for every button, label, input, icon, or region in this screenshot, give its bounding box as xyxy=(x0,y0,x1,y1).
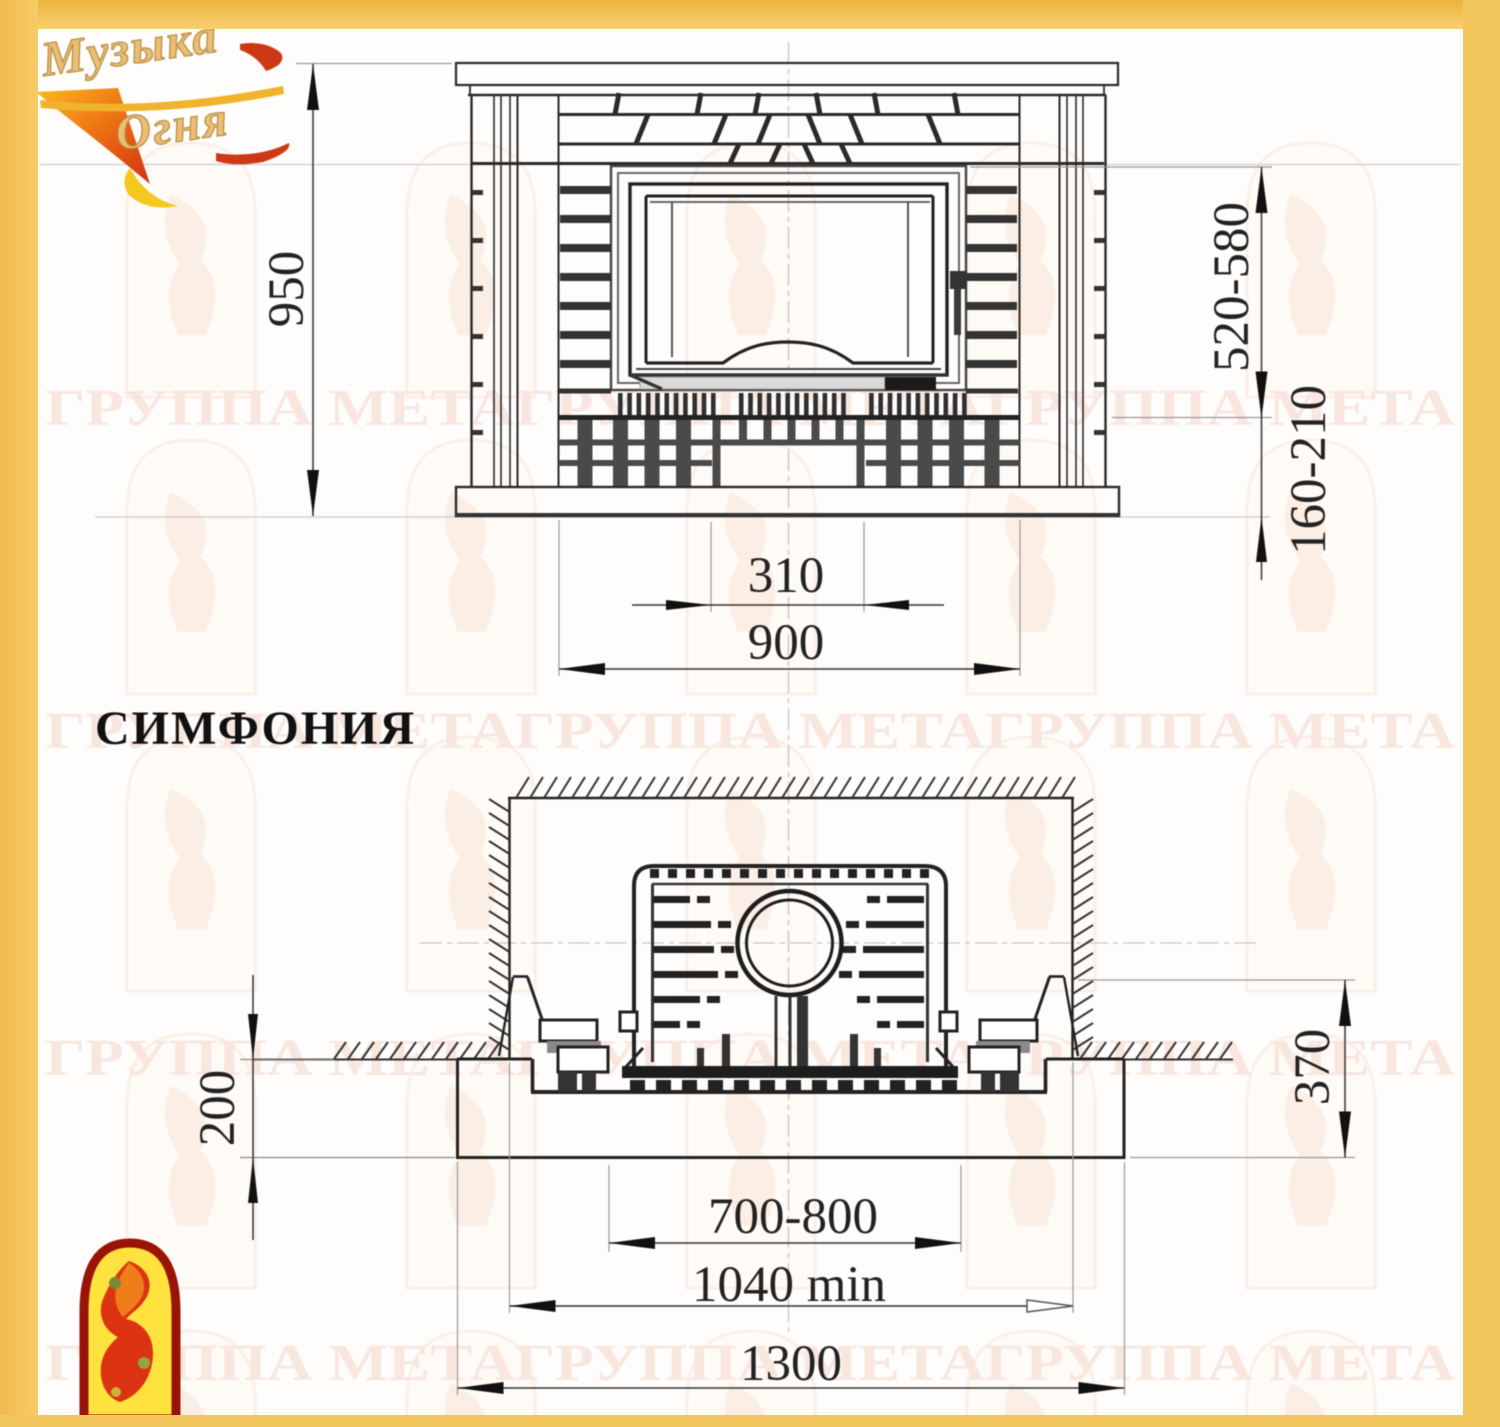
svg-text:СИМФОНИЯ: СИМФОНИЯ xyxy=(95,702,416,755)
svg-text:310: 310 xyxy=(748,548,825,604)
svg-text:700-800: 700-800 xyxy=(708,1189,878,1245)
svg-text:160-210: 160-210 xyxy=(1281,385,1337,555)
svg-text:900: 900 xyxy=(748,615,825,671)
svg-text:520-580: 520-580 xyxy=(1204,202,1260,372)
svg-text:200: 200 xyxy=(190,1070,246,1147)
svg-text:950: 950 xyxy=(259,251,315,328)
svg-text:1300: 1300 xyxy=(740,1336,842,1392)
svg-text:370: 370 xyxy=(1285,1029,1341,1106)
svg-text:1040 min: 1040 min xyxy=(692,1257,886,1313)
